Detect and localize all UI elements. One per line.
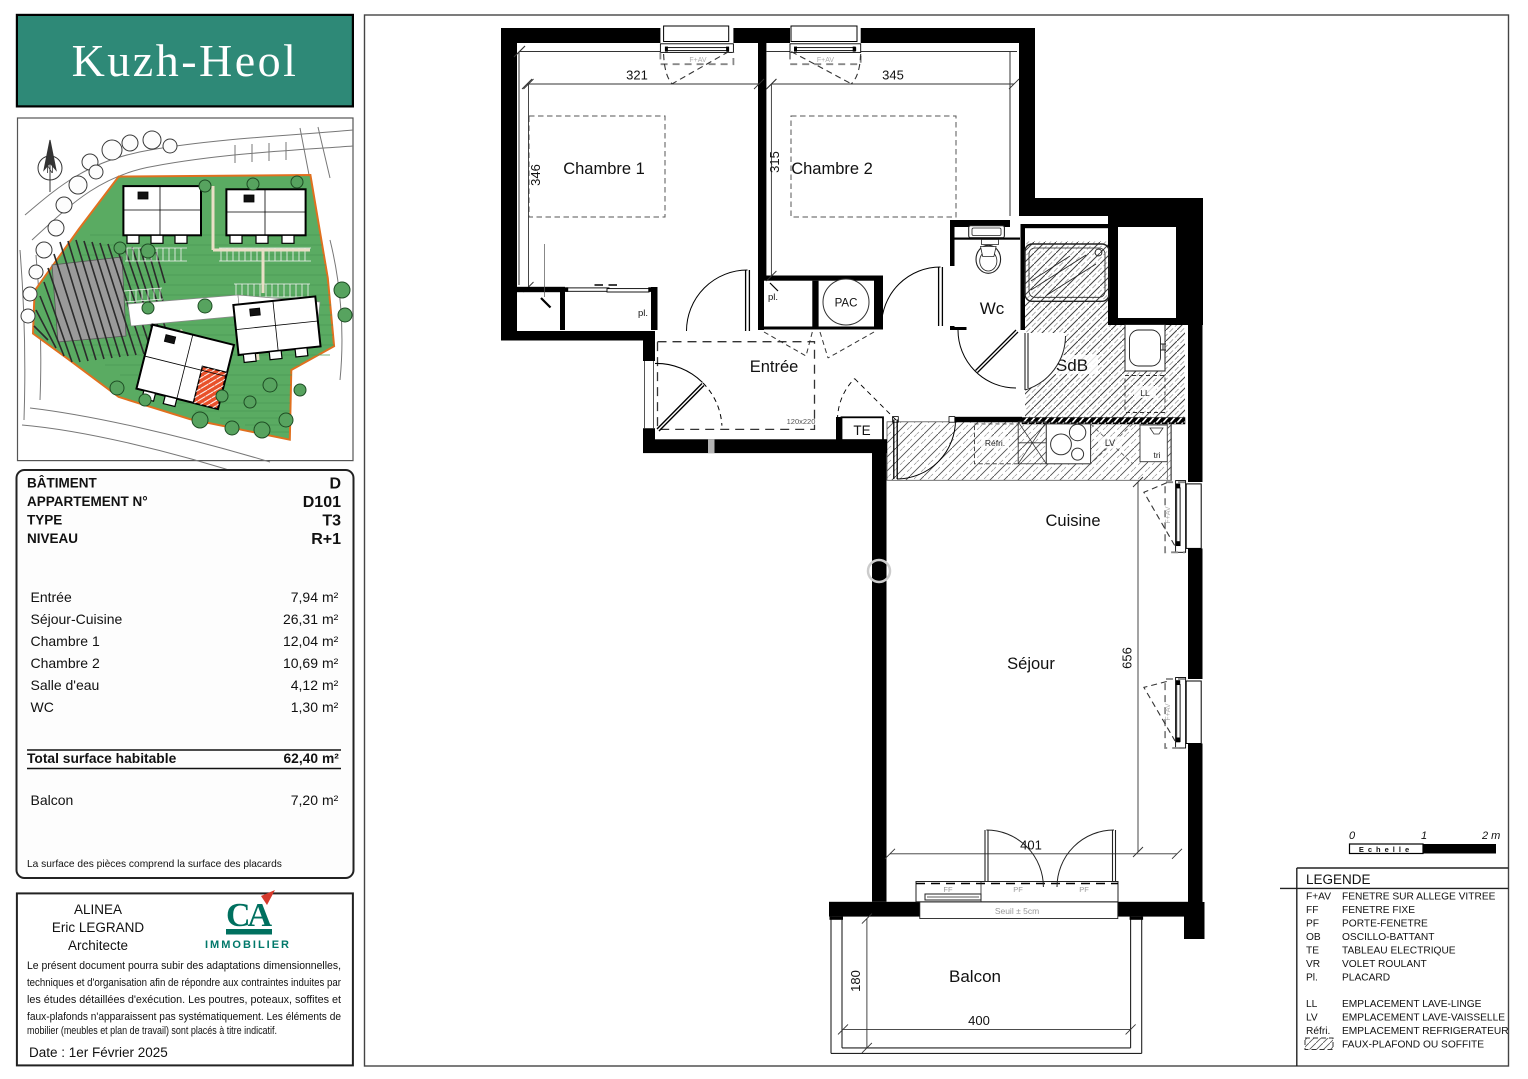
svg-text:TE: TE — [853, 423, 870, 438]
svg-text:7,94: 7,94 — [291, 589, 318, 605]
svg-text:PLACARD: PLACARD — [1342, 973, 1390, 984]
svg-text:Réfri.: Réfri. — [1306, 1026, 1330, 1037]
svg-text:346: 346 — [528, 164, 543, 186]
svg-text:m²: m² — [322, 611, 339, 627]
svg-text:Le présent document pourra sub: Le présent document pourra subir des ada… — [27, 960, 341, 972]
svg-text:F+AV: F+AV — [689, 57, 707, 64]
svg-text:EMPLACEMENT REFRIGERATEUR: EMPLACEMENT REFRIGERATEUR — [1342, 1026, 1509, 1037]
svg-text:TE: TE — [1306, 946, 1319, 957]
svg-text:mobilier (meubles et plan de t: mobilier (meubles et plan de travail) so… — [27, 1025, 277, 1037]
svg-text:Séjour: Séjour — [1007, 655, 1055, 673]
svg-text:Chambre 2: Chambre 2 — [31, 655, 100, 671]
svg-text:OSCILLO-BATTANT: OSCILLO-BATTANT — [1342, 932, 1434, 943]
svg-text:FAUX-PLAFOND OU SOFFITE: FAUX-PLAFOND OU SOFFITE — [1342, 1040, 1484, 1051]
svg-text:FF: FF — [1306, 905, 1318, 916]
svg-text:FENETRE FIXE: FENETRE FIXE — [1342, 905, 1415, 916]
svg-text:R+1: R+1 — [311, 531, 341, 548]
svg-text:Chambre 1: Chambre 1 — [31, 633, 100, 649]
svg-text:Architecte: Architecte — [68, 938, 128, 953]
svg-text:Balcon: Balcon — [949, 967, 1001, 986]
svg-text:656: 656 — [1120, 647, 1135, 669]
svg-text:Réfri.: Réfri. — [985, 438, 1005, 448]
svg-text:pl.: pl. — [638, 308, 648, 319]
svg-text:BÂTIMENT: BÂTIMENT — [27, 476, 97, 491]
svg-text:Pl.: Pl. — [1306, 973, 1318, 984]
svg-text:345: 345 — [882, 68, 904, 83]
svg-text:Echelle: Echelle — [1359, 845, 1413, 854]
svg-text:26,31: 26,31 — [283, 611, 318, 627]
svg-text:faux-plafonds n'apparaissent p: faux-plafonds n'apparaissent pas systéma… — [27, 1011, 341, 1023]
svg-text:VR: VR — [1306, 959, 1320, 970]
svg-text:m²: m² — [322, 699, 339, 715]
svg-text:Cuisine: Cuisine — [1045, 512, 1100, 530]
svg-text:7,20: 7,20 — [291, 792, 318, 808]
svg-text:120x220: 120x220 — [787, 417, 816, 426]
svg-text:Entrée: Entrée — [750, 358, 799, 376]
svg-text:m²: m² — [322, 751, 339, 766]
svg-text:EMPLACEMENT LAVE-VAISSELLE: EMPLACEMENT LAVE-VAISSELLE — [1342, 1013, 1505, 1024]
svg-text:PF: PF — [1306, 919, 1319, 930]
svg-text:APPARTEMENT N°: APPARTEMENT N° — [27, 494, 148, 509]
svg-text:10,69: 10,69 — [283, 655, 318, 671]
svg-text:LL: LL — [1306, 999, 1318, 1010]
svg-text:techniques et d'organisation a: techniques et d'organisation afin de rép… — [27, 977, 341, 989]
svg-text:1: 1 — [1421, 830, 1427, 842]
svg-text:D101: D101 — [303, 494, 341, 511]
svg-text:m²: m² — [322, 792, 339, 808]
svg-text:m²: m² — [322, 589, 339, 605]
svg-text:D: D — [329, 476, 341, 493]
svg-text:F+AV: F+AV — [1165, 703, 1172, 721]
svg-text:Entrée: Entrée — [31, 589, 72, 605]
svg-text:LV: LV — [1306, 1013, 1318, 1024]
svg-text:ALINEA: ALINEA — [74, 902, 122, 917]
svg-text:180: 180 — [848, 970, 863, 992]
svg-text:Séjour-Cuisine: Séjour-Cuisine — [31, 611, 123, 627]
svg-text:Chambre 1: Chambre 1 — [563, 160, 645, 178]
svg-text:Wc: Wc — [980, 299, 1005, 318]
svg-text:PAC: PAC — [835, 298, 858, 310]
svg-text:401: 401 — [1020, 838, 1042, 853]
svg-text:m²: m² — [322, 633, 339, 649]
svg-text:tri: tri — [1153, 450, 1160, 460]
svg-text:Seuil ± 5cm: Seuil ± 5cm — [995, 906, 1039, 916]
svg-text:les études détaillées d'exécut: les études détaillées d'exécution. Les p… — [27, 994, 342, 1006]
svg-text:Salle d'eau: Salle d'eau — [31, 677, 100, 693]
svg-text:LV: LV — [1105, 438, 1115, 448]
svg-text:315: 315 — [767, 151, 782, 173]
svg-text:FF: FF — [943, 885, 953, 894]
svg-text:LL: LL — [1140, 388, 1150, 398]
svg-text:LEGENDE: LEGENDE — [1306, 872, 1371, 887]
svg-text:EMPLACEMENT LAVE-LINGE: EMPLACEMENT LAVE-LINGE — [1342, 999, 1482, 1010]
svg-text:Eric LEGRAND: Eric LEGRAND — [52, 920, 145, 935]
svg-text:1,30: 1,30 — [291, 699, 318, 715]
svg-text:m²: m² — [322, 655, 339, 671]
svg-text:La surface des pièces comprend: La surface des pièces comprend la surfac… — [27, 859, 282, 870]
svg-text:TYPE: TYPE — [27, 513, 62, 528]
svg-text:2 m: 2 m — [1481, 830, 1500, 842]
svg-text:321: 321 — [626, 68, 648, 83]
svg-text:VOLET ROULANT: VOLET ROULANT — [1342, 959, 1427, 970]
svg-text:FENETRE SUR ALLEGE VITREE: FENETRE SUR ALLEGE VITREE — [1342, 892, 1496, 903]
svg-text:IMMOBILIER: IMMOBILIER — [205, 939, 291, 951]
svg-text:Kuzh-Heol: Kuzh-Heol — [72, 35, 299, 86]
svg-text:Total surface habitable: Total surface habitable — [27, 751, 177, 766]
svg-text:F+AV: F+AV — [817, 57, 835, 64]
svg-text:Date : 1er Février 2025: Date : 1er Février 2025 — [29, 1045, 168, 1060]
svg-text:NIVEAU: NIVEAU — [27, 531, 78, 546]
svg-text:PF: PF — [1013, 885, 1023, 894]
svg-text:0: 0 — [1349, 830, 1356, 842]
svg-text:PF: PF — [1079, 885, 1089, 894]
svg-text:4,12: 4,12 — [291, 677, 318, 693]
svg-text:PORTE-FENETRE: PORTE-FENETRE — [1342, 919, 1428, 930]
svg-text:pl.: pl. — [768, 292, 778, 303]
svg-text:400: 400 — [968, 1013, 990, 1028]
svg-text:Chambre 2: Chambre 2 — [791, 160, 873, 178]
svg-text:F+AV: F+AV — [1165, 506, 1172, 524]
svg-text:N: N — [46, 165, 53, 176]
svg-text:62,40: 62,40 — [283, 751, 318, 766]
svg-text:TABLEAU ELECTRIQUE: TABLEAU ELECTRIQUE — [1342, 946, 1456, 957]
svg-text:T3: T3 — [322, 513, 341, 530]
svg-text:WC: WC — [31, 699, 54, 715]
svg-text:m²: m² — [322, 677, 339, 693]
svg-text:Balcon: Balcon — [31, 792, 74, 808]
svg-text:12,04: 12,04 — [283, 633, 318, 649]
svg-text:F+AV: F+AV — [1306, 892, 1331, 903]
svg-text:OB: OB — [1306, 932, 1321, 943]
